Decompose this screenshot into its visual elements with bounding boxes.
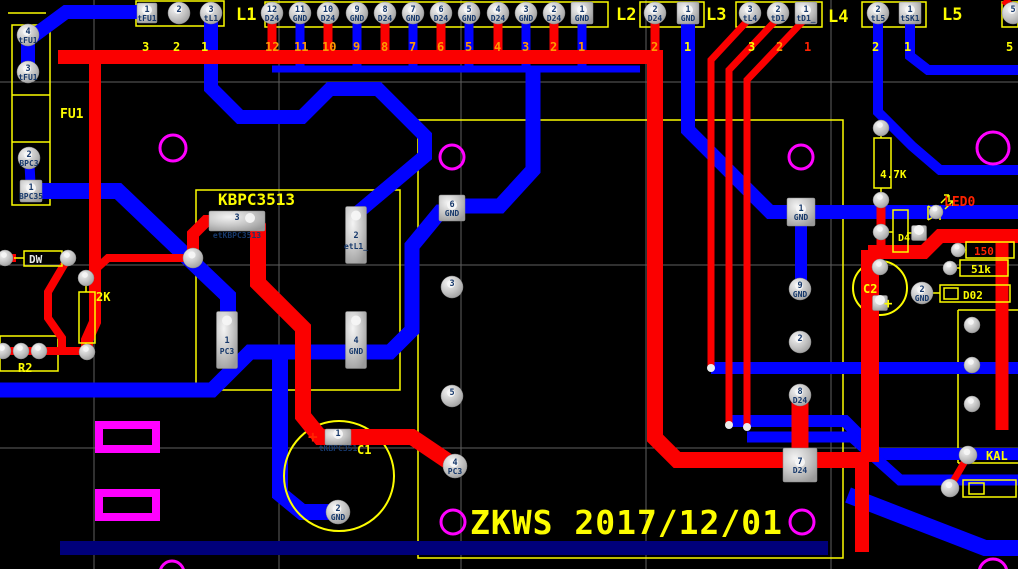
label-2-21[interactable]: 2	[651, 40, 658, 54]
svg-text:tKBPC351: tKBPC351	[319, 444, 358, 453]
label-150-40[interactable]: 150	[974, 245, 994, 258]
pad-x-47[interactable]	[0, 343, 11, 359]
pad-x-52[interactable]	[873, 224, 889, 240]
svg-text:GND: GND	[406, 14, 421, 23]
pad-x-62[interactable]	[964, 396, 980, 412]
pad-2-BPC3[interactable]: 2BPC3	[18, 147, 40, 169]
pad-x-46[interactable]	[79, 344, 95, 360]
svg-text:D24: D24	[547, 14, 562, 23]
svg-text:tL1: tL1	[204, 14, 219, 23]
label-4-17[interactable]: 4	[494, 40, 501, 54]
keepout-circle-3[interactable]	[977, 132, 1009, 164]
date-stamp-text[interactable]: ZKWS 2017/12/01	[470, 503, 783, 542]
label-3-18[interactable]: 3	[522, 40, 529, 54]
pad-x-42[interactable]	[0, 250, 13, 266]
label-12-9[interactable]: 12	[265, 40, 279, 54]
label-5-28[interactable]: 5	[1006, 40, 1013, 54]
trace-bottom-17[interactable]	[878, 16, 1018, 170]
svg-text:D24: D24	[648, 14, 663, 23]
label-7-14[interactable]: 7	[409, 40, 416, 54]
pad-x-53[interactable]	[912, 225, 927, 241]
svg-text:GND: GND	[293, 14, 308, 23]
label-47k-37[interactable]: 4.7K	[880, 168, 907, 181]
svg-text:PC3: PC3	[220, 347, 235, 356]
svg-text:2: 2	[176, 5, 181, 15]
svg-text:tFU1: tFU1	[18, 73, 37, 82]
generated-layers: 12D2411GND10D249GND8D247GND6D245GND4D243…	[0, 0, 1018, 569]
svg-text:GND: GND	[331, 513, 346, 522]
svg-text:GND: GND	[519, 14, 534, 23]
label-8-13[interactable]: 8	[381, 40, 388, 54]
label-c2-35[interactable]: C2	[863, 282, 877, 296]
via-1[interactable]	[725, 421, 733, 429]
pad-7-GND[interactable]: 7GND	[402, 2, 424, 24]
svg-text:etL1_: etL1_	[344, 242, 368, 251]
label-dw-30[interactable]: DW	[29, 253, 43, 266]
pad-1-GND[interactable]: 1GND	[571, 2, 593, 24]
label-led0-39[interactable]: LED0	[944, 195, 975, 210]
svg-text:D24: D24	[793, 466, 808, 475]
pad-8-D24[interactable]: 8D24	[789, 384, 811, 406]
svg-text:D24: D24	[434, 14, 449, 23]
pad-4-D24[interactable]: 4D24	[487, 2, 509, 24]
label-l1-1[interactable]: L1	[236, 5, 256, 25]
label-2-24[interactable]: 2	[776, 40, 783, 54]
pad-1-GND[interactable]: 1GND	[787, 198, 815, 226]
pad-3-tL4[interactable]: 3tL4	[739, 2, 761, 24]
keepout-circle-6[interactable]	[160, 561, 184, 569]
svg-text:tL5: tL5	[871, 14, 886, 23]
pad-x-54[interactable]	[929, 205, 943, 219]
pad-x-43[interactable]	[60, 250, 76, 266]
via-0[interactable]	[707, 364, 715, 372]
pad-2-13[interactable]: 2	[168, 2, 190, 24]
pad-2-GND[interactable]: 2GND	[326, 500, 350, 524]
svg-text:etKBPC3513: etKBPC3513	[213, 231, 261, 240]
pad-3-tFU1[interactable]: 3tFU1	[17, 61, 39, 83]
pad-6-D24[interactable]: 6D24	[430, 2, 452, 24]
svg-text:1: 1	[335, 429, 340, 439]
pad-9-GND[interactable]: 9GND	[346, 2, 368, 24]
svg-text:GND: GND	[794, 213, 809, 222]
pad-2-D24[interactable]: 2D24	[644, 2, 666, 24]
pad-x-48[interactable]	[13, 343, 29, 359]
via-2[interactable]	[743, 423, 751, 431]
label-9-12[interactable]: 9	[353, 40, 360, 54]
pad-9-GND[interactable]: 9GND	[789, 278, 811, 300]
label-11-10[interactable]: 11	[294, 40, 308, 54]
label-kbpc3513-29[interactable]: KBPC3513	[218, 190, 295, 209]
pad-5-GND[interactable]: 5GND	[458, 2, 480, 24]
silk-d02-band[interactable]	[944, 288, 958, 299]
pad-x-44[interactable]	[183, 248, 203, 268]
svg-text:tD1_: tD1_	[796, 14, 815, 23]
label-2-26[interactable]: 2	[872, 40, 879, 54]
pad-1-GND[interactable]: 1GND	[677, 2, 699, 24]
svg-text:3: 3	[449, 279, 454, 289]
trace-bottom-15[interactable]	[688, 16, 1018, 212]
svg-text:GND: GND	[350, 14, 365, 23]
pad-1-tD1_[interactable]: 1tD1_	[795, 2, 817, 24]
svg-text:GND: GND	[915, 294, 930, 303]
label-5-16[interactable]: 5	[465, 40, 472, 54]
label-3-23[interactable]: 3	[748, 40, 755, 54]
pad-4-tFU1[interactable]: 4tFU1	[17, 24, 39, 46]
pad-x-61[interactable]	[964, 357, 980, 373]
label-1-20[interactable]: 1	[578, 40, 585, 54]
label--36[interactable]: +	[884, 296, 892, 312]
pad-10-D24[interactable]: 10D24	[317, 2, 339, 24]
pad-2-tD1[interactable]: 2tD1	[767, 2, 789, 24]
pad-1-BPC35[interactable]: 1BPC35	[19, 180, 43, 202]
pad-2-tL5[interactable]: 2tL5	[867, 2, 889, 24]
label-d4-38[interactable]: D4	[898, 233, 910, 244]
label-fu1-0[interactable]: FU1	[60, 107, 84, 122]
label-l2-2[interactable]: L2	[616, 5, 636, 25]
pad-1-tFU1[interactable]: 1tFU1	[137, 3, 157, 23]
label-l5-5[interactable]: L5	[942, 5, 962, 25]
svg-text:D24: D24	[491, 14, 506, 23]
pad-2-etL1_[interactable]: 2etL1_	[344, 207, 368, 264]
svg-text:GND: GND	[462, 14, 477, 23]
label-kal-43[interactable]: KAL	[986, 449, 1008, 463]
svg-text:4: 4	[353, 336, 358, 346]
svg-text:tSK1: tSK1	[900, 14, 919, 23]
pad-4-PC3[interactable]: 4PC3	[443, 454, 467, 478]
svg-text:D24: D24	[265, 14, 280, 23]
pad-5-33[interactable]: 5	[441, 385, 463, 407]
silkscreen-circles-layer	[284, 261, 907, 531]
label-1-22[interactable]: 1	[684, 40, 691, 54]
pad-2-GND[interactable]: 2GND	[911, 282, 933, 304]
keepout-circle-0[interactable]	[160, 135, 186, 161]
label-1-8[interactable]: 1	[201, 40, 208, 54]
svg-text:D24: D24	[378, 14, 393, 23]
pad-x-56[interactable]	[943, 261, 957, 275]
svg-text:tFU1: tFU1	[18, 36, 37, 45]
pad-2-37[interactable]: 2	[789, 331, 811, 353]
silk-main-module-outline[interactable]	[418, 120, 843, 558]
svg-text:tL4: tL4	[743, 14, 758, 23]
pad-6-GND[interactable]: 6GND	[439, 195, 465, 221]
label-d02-42[interactable]: D02	[963, 289, 983, 302]
svg-text:BPC3: BPC3	[19, 159, 38, 168]
svg-text:GND: GND	[793, 290, 808, 299]
label-6-15[interactable]: 6	[437, 40, 444, 54]
svg-text:PC3: PC3	[448, 467, 463, 476]
label-3-6[interactable]: 3	[142, 40, 149, 54]
svg-text:GND: GND	[349, 347, 364, 356]
pad-3-32[interactable]: 3	[441, 276, 463, 298]
keepout-rect-1[interactable]	[99, 493, 156, 517]
svg-text:BPC35: BPC35	[19, 192, 43, 201]
pad-12-D24[interactable]: 12D24	[261, 2, 283, 24]
svg-text:GND: GND	[681, 14, 696, 23]
label-l4-4[interactable]: L4	[828, 7, 848, 27]
pad-3-GND[interactable]: 3GND	[515, 2, 537, 24]
svg-text:2: 2	[797, 334, 802, 344]
trace-top-14[interactable]	[87, 55, 95, 352]
pad-1-PC3[interactable]: 1PC3	[217, 312, 238, 369]
svg-text:GND: GND	[445, 209, 460, 218]
keepout-circle-2[interactable]	[789, 145, 813, 169]
label-1-25[interactable]: 1	[804, 40, 811, 54]
trace-bottom-22[interactable]	[848, 495, 1018, 548]
label-r2-32[interactable]: R2	[18, 361, 32, 375]
pad-x-49[interactable]	[31, 343, 47, 359]
keepout-circle-5[interactable]	[790, 510, 814, 534]
keepout-circle-1[interactable]	[440, 145, 464, 169]
label-2-19[interactable]: 2	[550, 40, 557, 54]
pad-8-D24[interactable]: 8D24	[374, 2, 396, 24]
label-c1-33[interactable]: C1	[357, 443, 371, 457]
svg-text:1: 1	[224, 336, 229, 346]
pad-x-45[interactable]	[78, 270, 94, 286]
svg-text:5: 5	[449, 388, 454, 398]
label-2k-31[interactable]: 2K	[96, 290, 111, 304]
pad-11-GND[interactable]: 11GND	[289, 2, 311, 24]
label-2-7[interactable]: 2	[173, 40, 180, 54]
label--34[interactable]: +	[308, 427, 318, 446]
svg-text:tFU1: tFU1	[137, 14, 156, 23]
top-copper-layer	[0, 0, 1018, 552]
svg-text:GND: GND	[575, 14, 590, 23]
pad-x-63[interactable]	[959, 446, 977, 464]
label-51k-41[interactable]: 51k	[971, 263, 991, 276]
svg-text:2: 2	[353, 231, 358, 241]
pad-x-55[interactable]	[951, 243, 965, 257]
pad-4-GND[interactable]: 4GND	[346, 312, 367, 369]
svg-text:3: 3	[234, 213, 239, 223]
board-svg: 12D2411GND10D249GND8D247GND6D245GND4D243…	[0, 0, 1018, 569]
pad-x-50[interactable]	[873, 120, 889, 136]
trace-bottom-7[interactable]	[452, 66, 533, 206]
pad-x-51[interactable]	[873, 192, 889, 208]
keepout-rect-0[interactable]	[99, 425, 156, 449]
svg-text:D24: D24	[321, 14, 336, 23]
svg-text:5: 5	[1010, 5, 1015, 15]
pad-2-D24[interactable]: 2D24	[543, 2, 565, 24]
pcb-canvas: 12D2411GND10D249GND8D247GND6D245GND4D243…	[0, 0, 1018, 569]
label-10-11[interactable]: 10	[322, 40, 336, 54]
trace-top-16[interactable]	[48, 258, 68, 351]
keepout-circle-7[interactable]	[979, 559, 1007, 569]
label-1-27[interactable]: 1	[904, 40, 911, 54]
pad-1-tSK1[interactable]: 1tSK1	[899, 2, 921, 24]
svg-text:D24: D24	[793, 396, 808, 405]
pad-3-tL1[interactable]: 3tL1	[200, 2, 222, 24]
label-l3-3[interactable]: L3	[706, 5, 726, 25]
svg-text:tD1: tD1	[771, 14, 786, 23]
pad-3-etKBPC3513[interactable]: 3etKBPC3513	[209, 211, 265, 240]
pad-x-60[interactable]	[964, 317, 980, 333]
trace-top-18[interactable]	[86, 258, 193, 278]
pad-7-D24[interactable]: 7D24	[783, 448, 817, 482]
pad-x-64[interactable]	[941, 479, 959, 497]
pad-x-58[interactable]	[872, 259, 888, 275]
